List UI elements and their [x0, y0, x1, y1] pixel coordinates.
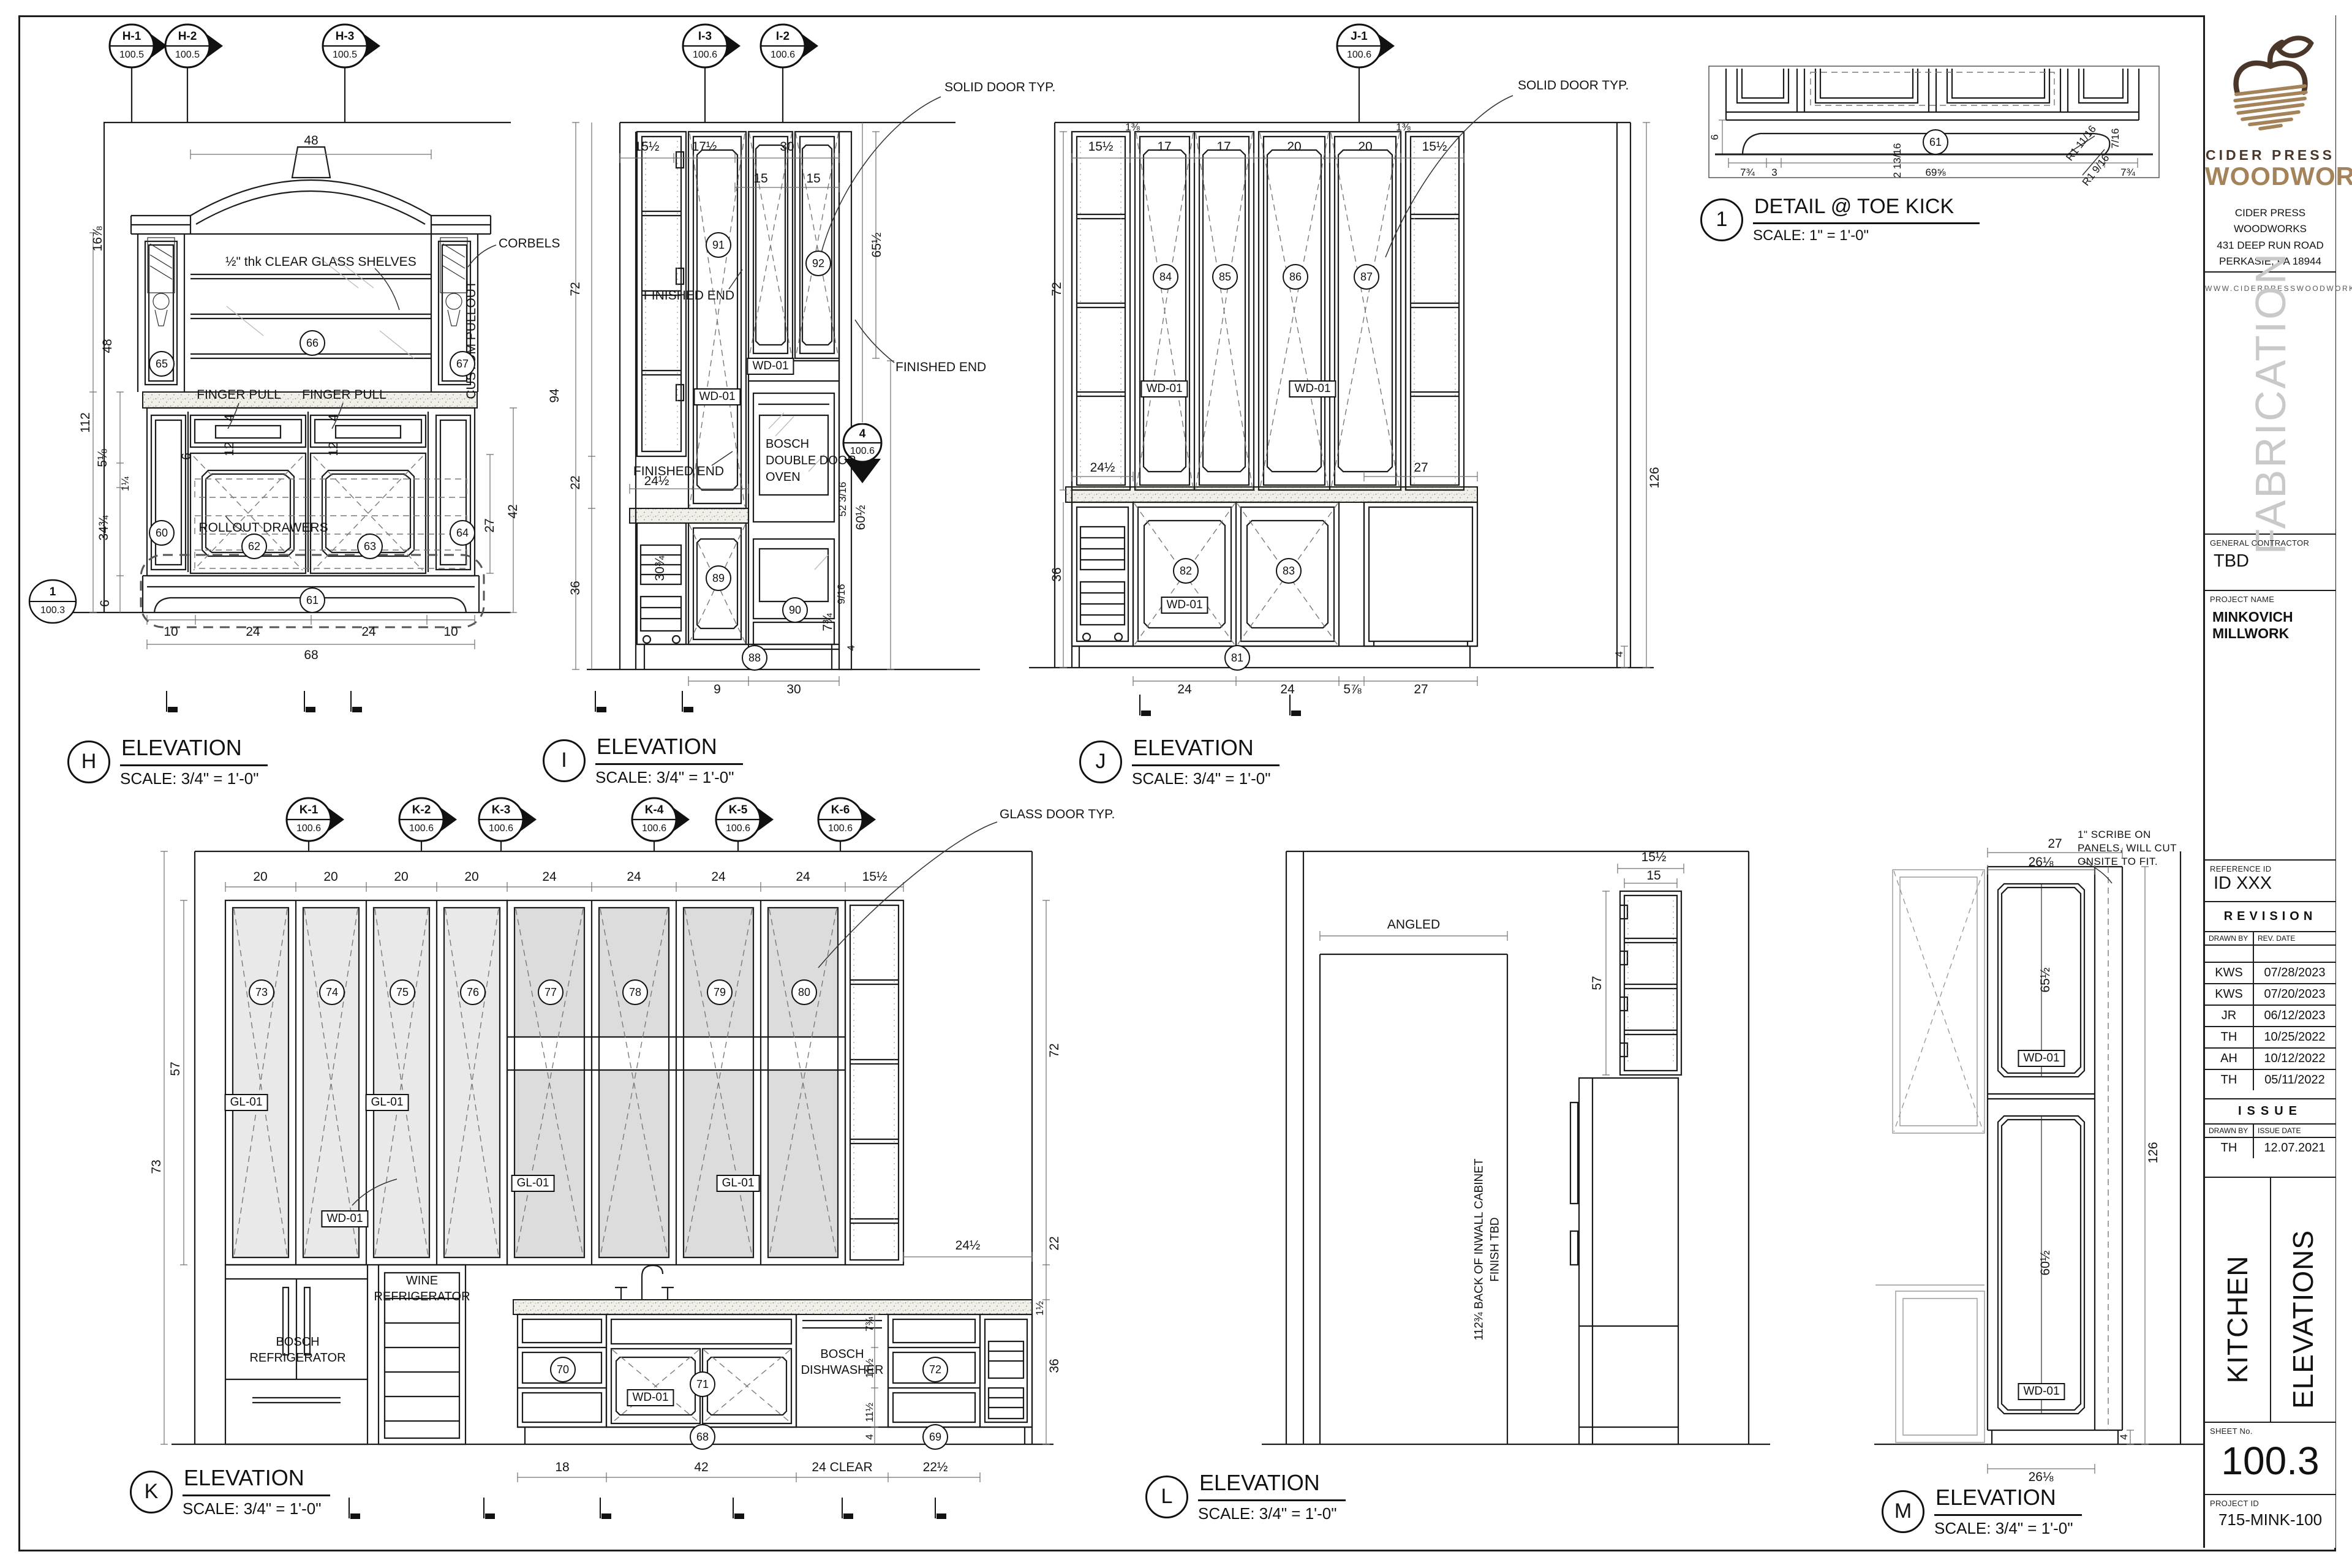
- dim: 9: [714, 682, 721, 697]
- bubble: 60: [149, 520, 175, 546]
- view-marker-k4: K-4100.6: [628, 797, 692, 842]
- dim: 17: [1216, 140, 1231, 154]
- rev-date: 07/20/2023: [2254, 984, 2335, 1005]
- revision-row-empty: [2205, 944, 2335, 962]
- bubble: 67: [450, 351, 475, 377]
- revision-header: DRAWN BY REV. DATE: [2205, 931, 2335, 944]
- project-id-value: 715-MINK-100: [2205, 1508, 2335, 1534]
- view-scale: SCALE: 3/4" = 1'-0": [183, 1496, 330, 1518]
- view-marker-k2: K-2100.6: [396, 797, 459, 842]
- marker-id: K-4: [645, 804, 664, 817]
- inwall-line2: FINISH TBD: [1487, 1158, 1503, 1340]
- bubble: 65: [149, 351, 175, 377]
- view-marker-j1: J-1100.6: [1333, 23, 1397, 69]
- finger-pull-label: FINGER PULL: [197, 388, 281, 402]
- cider-press-logo: [2218, 29, 2323, 139]
- finish-tag: WD-01: [627, 1389, 674, 1406]
- marker-sheet: 100.6: [726, 823, 750, 834]
- view-title: ELEVATION: [1132, 735, 1280, 766]
- sheet-name-1: KITCHEN: [2221, 1255, 2254, 1383]
- fabrication-panel: FABRICATION: [2205, 273, 2335, 535]
- sheet-no-value: 100.3: [2205, 1436, 2335, 1488]
- view-marker-h3: H-3100.5: [319, 23, 383, 69]
- view-title: ELEVATION: [595, 734, 743, 765]
- elevation-k-title: K ELEVATION SCALE: 3/4" = 1'-0": [130, 1465, 330, 1518]
- marker-id: J-1: [1351, 30, 1367, 43]
- bubble: 68: [690, 1424, 715, 1450]
- sheet-name-panel: KITCHEN ELEVATIONS: [2205, 1178, 2335, 1423]
- bubble: 72: [922, 1357, 948, 1382]
- project-name-label: PROJECT NAME: [2205, 591, 2335, 604]
- marker-id: H-3: [336, 30, 355, 43]
- glass-door-label: GLASS DOOR TYP.: [1000, 807, 1115, 822]
- inwall-line1: 112¾ BACK OF INWALL CABINET: [1471, 1158, 1487, 1340]
- scribe-note: 1" SCRIBE ON PANELS, WILL CUT ONSITE TO …: [2078, 828, 2177, 869]
- brand-line2: WOODWORKS: [2205, 164, 2335, 189]
- dim: 24½: [956, 1238, 981, 1253]
- dim: 22½: [923, 1460, 948, 1475]
- finished-end-label: FINISHED END: [633, 464, 724, 479]
- dim: 30¾: [653, 556, 668, 581]
- dim: 6: [98, 600, 113, 607]
- dim: 11½: [864, 1403, 876, 1422]
- issue-title: ISSUE: [2205, 1099, 2335, 1123]
- drawn-by-col: DRAWN BY: [2205, 932, 2254, 944]
- dim: 15: [806, 171, 820, 186]
- dim: 27: [483, 518, 497, 532]
- dim: 4: [326, 414, 341, 421]
- marker-id: K-6: [831, 804, 850, 817]
- bubble: 75: [390, 979, 415, 1005]
- fr-line1: BOSCH: [249, 1334, 345, 1350]
- dim: 9/16: [835, 584, 848, 604]
- revision-row: KWS07/20/2023: [2205, 983, 2335, 1005]
- dim: 72: [1047, 1043, 1062, 1057]
- view-marker-k1: K-1100.6: [283, 797, 347, 842]
- rev-by: TH: [2205, 1070, 2254, 1090]
- bubble: 92: [805, 251, 831, 276]
- dim: 7¾: [2120, 167, 2135, 179]
- finish-tag: WD-01: [1289, 380, 1336, 398]
- bubble: 73: [249, 979, 274, 1005]
- rev-by: KWS: [2205, 984, 2254, 1005]
- bubble: 70: [550, 1357, 576, 1382]
- reference-id-label: REFERENCE ID: [2205, 861, 2335, 873]
- dim: 16⅞: [91, 227, 105, 252]
- dim: 15½: [862, 870, 888, 884]
- dim: 24: [542, 870, 556, 884]
- bubble: 81: [1224, 645, 1250, 671]
- dim: 24: [796, 870, 810, 884]
- dim: 112: [78, 412, 93, 432]
- inwall-note: 112¾ BACK OF INWALL CABINET FINISH TBD: [1471, 1158, 1502, 1340]
- issue-panel: ISSUE DRAWN BY ISSUE DATE TH 12.07.2021: [2205, 1098, 2335, 1178]
- bubble: 87: [1354, 264, 1379, 290]
- dim: 73: [149, 1159, 164, 1174]
- marker-id: 4: [859, 428, 866, 441]
- bosch-dishwasher-label: BOSCH DISHWASHER: [801, 1346, 884, 1378]
- marker-id: K-2: [412, 804, 431, 817]
- dim: 6: [179, 453, 194, 460]
- detail-scale: SCALE: 1" = 1'-0": [1753, 224, 1980, 244]
- marker-sheet: 100.6: [1347, 50, 1371, 61]
- bubble: 64: [450, 520, 475, 546]
- dim: 27: [1414, 461, 1428, 475]
- sheet-name-2: ELEVATIONS: [2286, 1230, 2320, 1409]
- wine-line1: WINE: [374, 1273, 470, 1289]
- dim: 17: [1157, 140, 1171, 154]
- dim: 12: [222, 442, 237, 456]
- dim: 65½: [2038, 968, 2053, 993]
- glass-shelves-label: ½" thk CLEAR GLASS SHELVES: [225, 255, 417, 269]
- corbels-label: CORBELS: [499, 236, 560, 251]
- bubble: 71: [690, 1371, 715, 1397]
- custom-pullout-label: CUSTOM PULLOUT: [464, 281, 479, 399]
- finish-tag: WD-01: [321, 1210, 368, 1227]
- rev-by: JR: [2205, 1006, 2254, 1026]
- dim: 24: [627, 870, 641, 884]
- project-id-label: PROJECT ID: [2205, 1495, 2335, 1508]
- elevation-i-title: I ELEVATION SCALE: 3/4" = 1'-0": [543, 734, 743, 787]
- dim: 5⅞: [1343, 682, 1361, 697]
- view-title: ELEVATION: [1198, 1470, 1346, 1501]
- oven-line3: OVEN: [766, 469, 856, 486]
- bubble: 76: [460, 979, 486, 1005]
- dim: 2 13/16: [1891, 143, 1904, 178]
- view-letter: L: [1145, 1476, 1188, 1518]
- reference-id-value: ID XXX: [2205, 873, 2335, 900]
- view-scale: SCALE: 3/4" = 1'-0": [1934, 1516, 2082, 1538]
- elevation-m-title: M ELEVATION SCALE: 3/4" = 1'-0": [1882, 1485, 2082, 1538]
- revision-row: TH10/25/2022: [2205, 1026, 2335, 1047]
- revision-row: KWS07/28/2023: [2205, 962, 2335, 983]
- bubble: 74: [319, 979, 345, 1005]
- view-title: ELEVATION: [1934, 1485, 2082, 1516]
- fabrication-watermark: FABRICATION: [2246, 252, 2295, 555]
- bubble: 69: [922, 1424, 948, 1450]
- dim: 20: [253, 870, 267, 884]
- bubble: 85: [1212, 264, 1238, 290]
- marker-id: 1: [50, 586, 56, 599]
- sheet-no-label: SHEET No.: [2205, 1423, 2335, 1436]
- marker-sheet: 100.6: [693, 50, 717, 61]
- dim: 65½: [870, 233, 884, 258]
- finish-tag: WD-01: [1140, 380, 1188, 398]
- view-scale: SCALE: 3/4" = 1'-0": [120, 766, 268, 788]
- oven-line2: DOUBLE DOOR: [766, 453, 856, 469]
- dim: 36: [1047, 1359, 1062, 1373]
- dim: 34¾: [97, 516, 111, 541]
- bubble: 88: [742, 645, 767, 671]
- dim: 48: [304, 134, 318, 148]
- rev-date-col: REV. DATE: [2254, 932, 2335, 944]
- marker-sheet: 100.6: [489, 823, 513, 834]
- note-line2: PANELS, WILL CUT: [2078, 842, 2177, 855]
- view-marker-k3: K-3100.6: [475, 797, 539, 842]
- dim: 126: [1648, 467, 1662, 488]
- rev-date: 10/12/2022: [2254, 1049, 2335, 1069]
- view-letter: H: [67, 741, 110, 783]
- dim: 52 3/16: [837, 482, 849, 517]
- view-scale: SCALE: 3/4" = 1'-0": [1198, 1501, 1346, 1523]
- bubble: 84: [1153, 264, 1178, 290]
- marker-sheet: 100.3: [40, 605, 65, 616]
- finish-tag: GL-01: [717, 1175, 760, 1192]
- issue-header: DRAWN BY ISSUE DATE: [2205, 1123, 2335, 1137]
- dim: 4: [222, 414, 237, 421]
- solid-door-label: SOLID DOOR TYP.: [944, 80, 1055, 95]
- dim: 20: [323, 870, 337, 884]
- project-name-panel: PROJECT NAME MINKOVICH MILLWORK: [2205, 591, 2335, 861]
- dim: 15½: [1088, 140, 1114, 154]
- marker-id: I-3: [698, 30, 712, 43]
- marker-sheet: 100.5: [333, 50, 357, 61]
- dim: 26⅛: [2029, 855, 2054, 870]
- general-contractor-panel: GENERAL CONTRACTOR TBD: [2205, 535, 2335, 591]
- dim: 4: [845, 645, 858, 650]
- bubble: 86: [1283, 264, 1308, 290]
- rev-by: TH: [2205, 1027, 2254, 1047]
- dim: 27: [2048, 837, 2062, 851]
- detail-number: 1: [1700, 198, 1743, 241]
- dim: 15: [1646, 869, 1660, 883]
- dim: 20: [394, 870, 408, 884]
- view-marker-i3: I-3100.6: [679, 23, 743, 69]
- dim: 24: [361, 625, 375, 639]
- revision-row: AH10/12/2022: [2205, 1047, 2335, 1069]
- dim: 126: [2146, 1142, 2161, 1163]
- marker-sheet: 100.5: [119, 50, 144, 61]
- rev-date: 07/28/2023: [2254, 963, 2335, 983]
- address-line1: CIDER PRESS WOODWORKS: [2205, 205, 2335, 238]
- view-marker-i2: I-2100.6: [757, 23, 821, 69]
- dim: 7¾: [864, 1317, 876, 1332]
- dim: 24 CLEAR: [812, 1460, 872, 1475]
- finish-tag: WD-01: [693, 388, 741, 405]
- reference-id-panel: REFERENCE ID ID XXX: [2205, 861, 2335, 902]
- dim: 20: [464, 870, 478, 884]
- dim: 22: [568, 475, 583, 489]
- issue-row: TH 12.07.2021: [2205, 1137, 2335, 1158]
- marker-sheet: 100.6: [409, 823, 434, 834]
- elevation-h-title: H ELEVATION SCALE: 3/4" = 1'-0": [67, 735, 268, 788]
- marker-id: K-5: [729, 804, 748, 817]
- view-scale: SCALE: 3/4" = 1'-0": [595, 765, 743, 787]
- marker-sheet: 100.6: [771, 50, 795, 61]
- dim: 24: [1280, 682, 1294, 697]
- project-id-panel: PROJECT ID 715-MINK-100: [2205, 1495, 2335, 1548]
- angled-label: ANGLED: [1387, 918, 1440, 932]
- dim: 3: [1771, 167, 1777, 179]
- marker-id: K-3: [492, 804, 511, 817]
- bubble: 63: [357, 533, 383, 559]
- dim: 72: [568, 282, 583, 296]
- elevation-j-title: J ELEVATION SCALE: 3/4" = 1'-0": [1079, 735, 1280, 788]
- dim: 30: [786, 682, 801, 697]
- finish-tag: GL-01: [511, 1175, 555, 1192]
- dim: 15½: [635, 140, 660, 154]
- bubble: 62: [241, 533, 267, 559]
- dim: 48: [100, 339, 115, 353]
- marker-id: H-2: [178, 30, 197, 43]
- dim: 36: [1050, 567, 1065, 581]
- detail-title: 1 DETAIL @ TOE KICK SCALE: 1" = 1'-0": [1700, 195, 1980, 244]
- dim: 7¾: [1740, 167, 1755, 179]
- oven-label: BOSCH DOUBLE DOOR OVEN: [766, 436, 856, 486]
- gc-value: TBD: [2205, 548, 2335, 578]
- rev-date: 05/11/2022: [2254, 1070, 2335, 1090]
- dim: 60½: [854, 505, 869, 530]
- view-title: ELEVATION: [120, 735, 268, 766]
- dim: 24: [246, 625, 260, 639]
- context-lines: [1875, 870, 1985, 1442]
- rollout-drawers-label: ROLLOUT DRAWERS: [198, 521, 328, 535]
- marker-id: K-1: [300, 804, 318, 817]
- dim: 24: [711, 870, 725, 884]
- bubble: 90: [782, 597, 808, 623]
- dim: 15½: [1422, 140, 1447, 154]
- finish-tag: WD-01: [1161, 597, 1208, 614]
- issue-by: TH: [2205, 1138, 2254, 1158]
- dim: 60½: [2038, 1251, 2053, 1276]
- dim: 10: [443, 625, 458, 639]
- dim: 17½: [692, 140, 717, 154]
- bubble: 61: [1923, 129, 1948, 155]
- dim: 1⅜: [1396, 121, 1411, 134]
- revision-panel: REVISION DRAWN BY REV. DATE KWS07/28/202…: [2205, 902, 2335, 1098]
- dim: 4: [2118, 1434, 2130, 1439]
- dim: 69⅝: [1925, 167, 1945, 179]
- finished-end-label: FINISHED END: [644, 288, 734, 303]
- drawn-by-col: DRAWN BY: [2205, 1125, 2254, 1137]
- elevation-l-title: L ELEVATION SCALE: 3/4" = 1'-0": [1145, 1470, 1346, 1523]
- fr-line2: REFRIGERATOR: [249, 1350, 345, 1366]
- marker-sheet: 100.6: [828, 823, 853, 834]
- dim: 4: [1613, 651, 1626, 657]
- dim: 27: [1414, 682, 1428, 697]
- view-letter: M: [1882, 1490, 1924, 1533]
- dim: 12: [326, 442, 341, 456]
- dim: 15½: [1642, 850, 1667, 865]
- revision-row: JR06/12/2023: [2205, 1005, 2335, 1026]
- dim: 57: [168, 1061, 183, 1076]
- wine-line2: REFRIGERATOR: [374, 1289, 470, 1305]
- view-letter: J: [1079, 741, 1122, 783]
- finish-tag: WD-01: [747, 358, 794, 375]
- revision-row: TH05/11/2022: [2205, 1069, 2335, 1090]
- dim: 20: [1287, 140, 1301, 154]
- dim: 5⅛: [96, 449, 110, 467]
- dim: 57: [1590, 976, 1605, 990]
- bubble: 91: [706, 232, 731, 258]
- dim: 26⅛: [2029, 1470, 2054, 1485]
- title-block: CIDER PRESS WOODWORKS CIDER PRESS WOODWO…: [2203, 15, 2335, 1548]
- bosch-refrigerator-label: BOSCH REFRIGERATOR: [249, 1334, 345, 1366]
- finished-end-label: FINISHED END: [895, 360, 986, 375]
- drawing-sheet: H-1100.5 H-2100.5 H-3100.5 I-3100.6 I-21…: [0, 0, 2352, 1568]
- sheet-number-panel: SHEET No. 100.3: [2205, 1423, 2335, 1495]
- dim: 15: [753, 171, 767, 186]
- company-panel: CIDER PRESS WOODWORKS CIDER PRESS WOODWO…: [2205, 15, 2335, 273]
- dim: 20: [1358, 140, 1372, 154]
- dim: 36: [568, 581, 583, 595]
- dim: 42: [506, 504, 521, 518]
- dw-line2: DISHWASHER: [801, 1362, 884, 1378]
- detail-name: DETAIL @ TOE KICK: [1753, 195, 1980, 224]
- revision-title: REVISION: [2205, 902, 2335, 931]
- brand-line1: CIDER PRESS: [2205, 147, 2335, 164]
- bubble: 82: [1173, 558, 1199, 584]
- view-scale: SCALE: 3/4" = 1'-0": [1132, 766, 1280, 788]
- rev-by: KWS: [2205, 963, 2254, 983]
- note-line1: 1" SCRIBE ON: [2078, 828, 2177, 842]
- view-marker-k5: K-5100.6: [712, 797, 776, 842]
- bubble: 80: [791, 979, 817, 1005]
- bubble: 89: [706, 565, 731, 591]
- dim: 7/16: [2109, 128, 2122, 148]
- dim: 4: [864, 1434, 876, 1439]
- oven-line1: BOSCH: [766, 436, 856, 453]
- dim: 6: [1709, 134, 1721, 140]
- bubble: 83: [1276, 558, 1302, 584]
- finish-tag: GL-01: [225, 1094, 268, 1111]
- marker-id: H-1: [123, 30, 141, 43]
- dim: 1½: [1034, 1301, 1046, 1316]
- issue-date: 12.07.2021: [2254, 1138, 2335, 1158]
- dim: 42: [694, 1460, 708, 1475]
- dim: 10: [164, 625, 178, 639]
- detail-viewport: [1709, 66, 2159, 178]
- leader-lines: [225, 96, 2112, 1205]
- wine-refrigerator-label: WINE REFRIGERATOR: [374, 1273, 470, 1305]
- view-letter: K: [130, 1471, 173, 1513]
- dim: 1⅜: [1125, 121, 1140, 134]
- marker-id: I-2: [776, 30, 790, 43]
- dw-line1: BOSCH: [801, 1346, 884, 1362]
- dim: 30: [780, 140, 794, 154]
- dim: 68: [304, 648, 318, 663]
- dim: 1¼: [119, 477, 132, 491]
- view-marker-h1: H-1100.5: [106, 23, 170, 69]
- dim: 7¾: [821, 613, 835, 631]
- finish-tag: WD-01: [2018, 1050, 2065, 1067]
- dim: 24½: [1090, 461, 1115, 475]
- ref-marker-1: 1100.3: [27, 579, 78, 624]
- marker-sheet: 100.5: [175, 50, 200, 61]
- note-line3: ONSITE TO FIT.: [2078, 855, 2177, 869]
- bubble: 79: [707, 979, 733, 1005]
- project-name-value: MINKOVICH MILLWORK: [2205, 604, 2335, 648]
- rev-date: 10/25/2022: [2254, 1027, 2335, 1047]
- view-marker-h2: H-2100.5: [162, 23, 225, 69]
- dim: 22: [1047, 1236, 1062, 1250]
- view-title: ELEVATION: [183, 1465, 330, 1496]
- bubble: 66: [300, 330, 325, 356]
- finish-tag: WD-01: [2018, 1383, 2065, 1400]
- dim: 72: [1050, 282, 1065, 296]
- view-marker-k6: K-6100.6: [815, 797, 878, 842]
- solid-door-label: SOLID DOOR TYP.: [1518, 78, 1629, 93]
- rev-by: AH: [2205, 1049, 2254, 1069]
- bubble: 78: [622, 979, 648, 1005]
- dim: 94: [548, 388, 562, 402]
- rev-date: 06/12/2023: [2254, 1006, 2335, 1026]
- dim: 18: [555, 1460, 569, 1475]
- marker-sheet: 100.6: [296, 823, 321, 834]
- marker-sheet: 100.6: [642, 823, 666, 834]
- issue-date-col: ISSUE DATE: [2254, 1125, 2335, 1137]
- bubble: 77: [538, 979, 563, 1005]
